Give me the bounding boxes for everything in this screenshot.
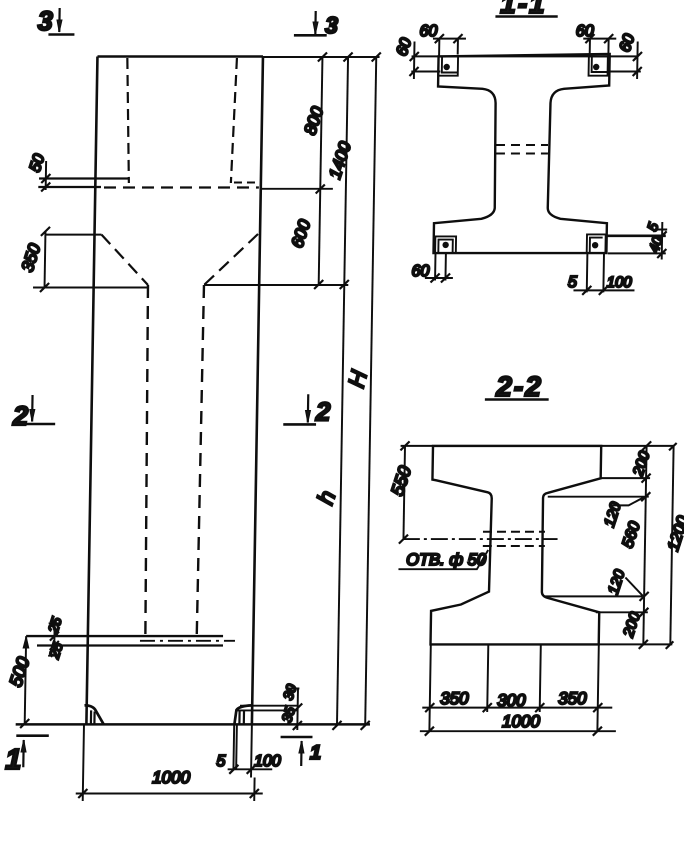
svg-text:5: 5 — [644, 221, 662, 233]
svg-text:60: 60 — [617, 32, 639, 54]
svg-text:560: 560 — [620, 520, 644, 551]
svg-text:2-2: 2-2 — [495, 371, 543, 402]
svg-text:1: 1 — [5, 744, 22, 776]
svg-text:100: 100 — [607, 274, 633, 291]
svg-text:350: 350 — [558, 689, 587, 708]
svg-text:3: 3 — [325, 12, 338, 38]
svg-text:35: 35 — [278, 705, 298, 725]
svg-text:600: 600 — [288, 217, 315, 250]
svg-text:120: 120 — [601, 500, 625, 530]
svg-text:2: 2 — [12, 401, 29, 431]
svg-text:60: 60 — [419, 23, 437, 40]
svg-text:60: 60 — [394, 36, 416, 58]
svg-text:200: 200 — [620, 610, 644, 640]
svg-text:1400: 1400 — [325, 139, 355, 181]
svg-text:60: 60 — [576, 23, 594, 40]
svg-text:100: 100 — [254, 753, 281, 770]
svg-text:1200: 1200 — [665, 514, 684, 553]
svg-text:60: 60 — [411, 263, 429, 280]
svg-text:5: 5 — [216, 753, 225, 770]
svg-text:H: H — [343, 367, 373, 390]
svg-text:300: 300 — [497, 691, 526, 710]
svg-text:1000: 1000 — [502, 712, 541, 731]
svg-text:500: 500 — [5, 655, 33, 690]
svg-text:3: 3 — [38, 6, 54, 36]
svg-text:2: 2 — [315, 397, 331, 427]
svg-text:25: 25 — [44, 615, 64, 636]
svg-text:1: 1 — [310, 742, 321, 764]
svg-text:350: 350 — [18, 241, 45, 274]
svg-text:120: 120 — [605, 567, 629, 597]
svg-text:25: 25 — [45, 641, 65, 662]
svg-text:ОТВ. ф 50: ОТВ. ф 50 — [406, 551, 487, 569]
svg-text:350: 350 — [440, 689, 469, 708]
svg-text:5: 5 — [568, 274, 577, 291]
svg-text:h: h — [312, 487, 341, 507]
svg-text:800: 800 — [300, 104, 327, 137]
svg-text:550: 550 — [387, 464, 415, 499]
svg-text:1000: 1000 — [152, 768, 191, 787]
svg-text:30: 30 — [280, 682, 300, 702]
